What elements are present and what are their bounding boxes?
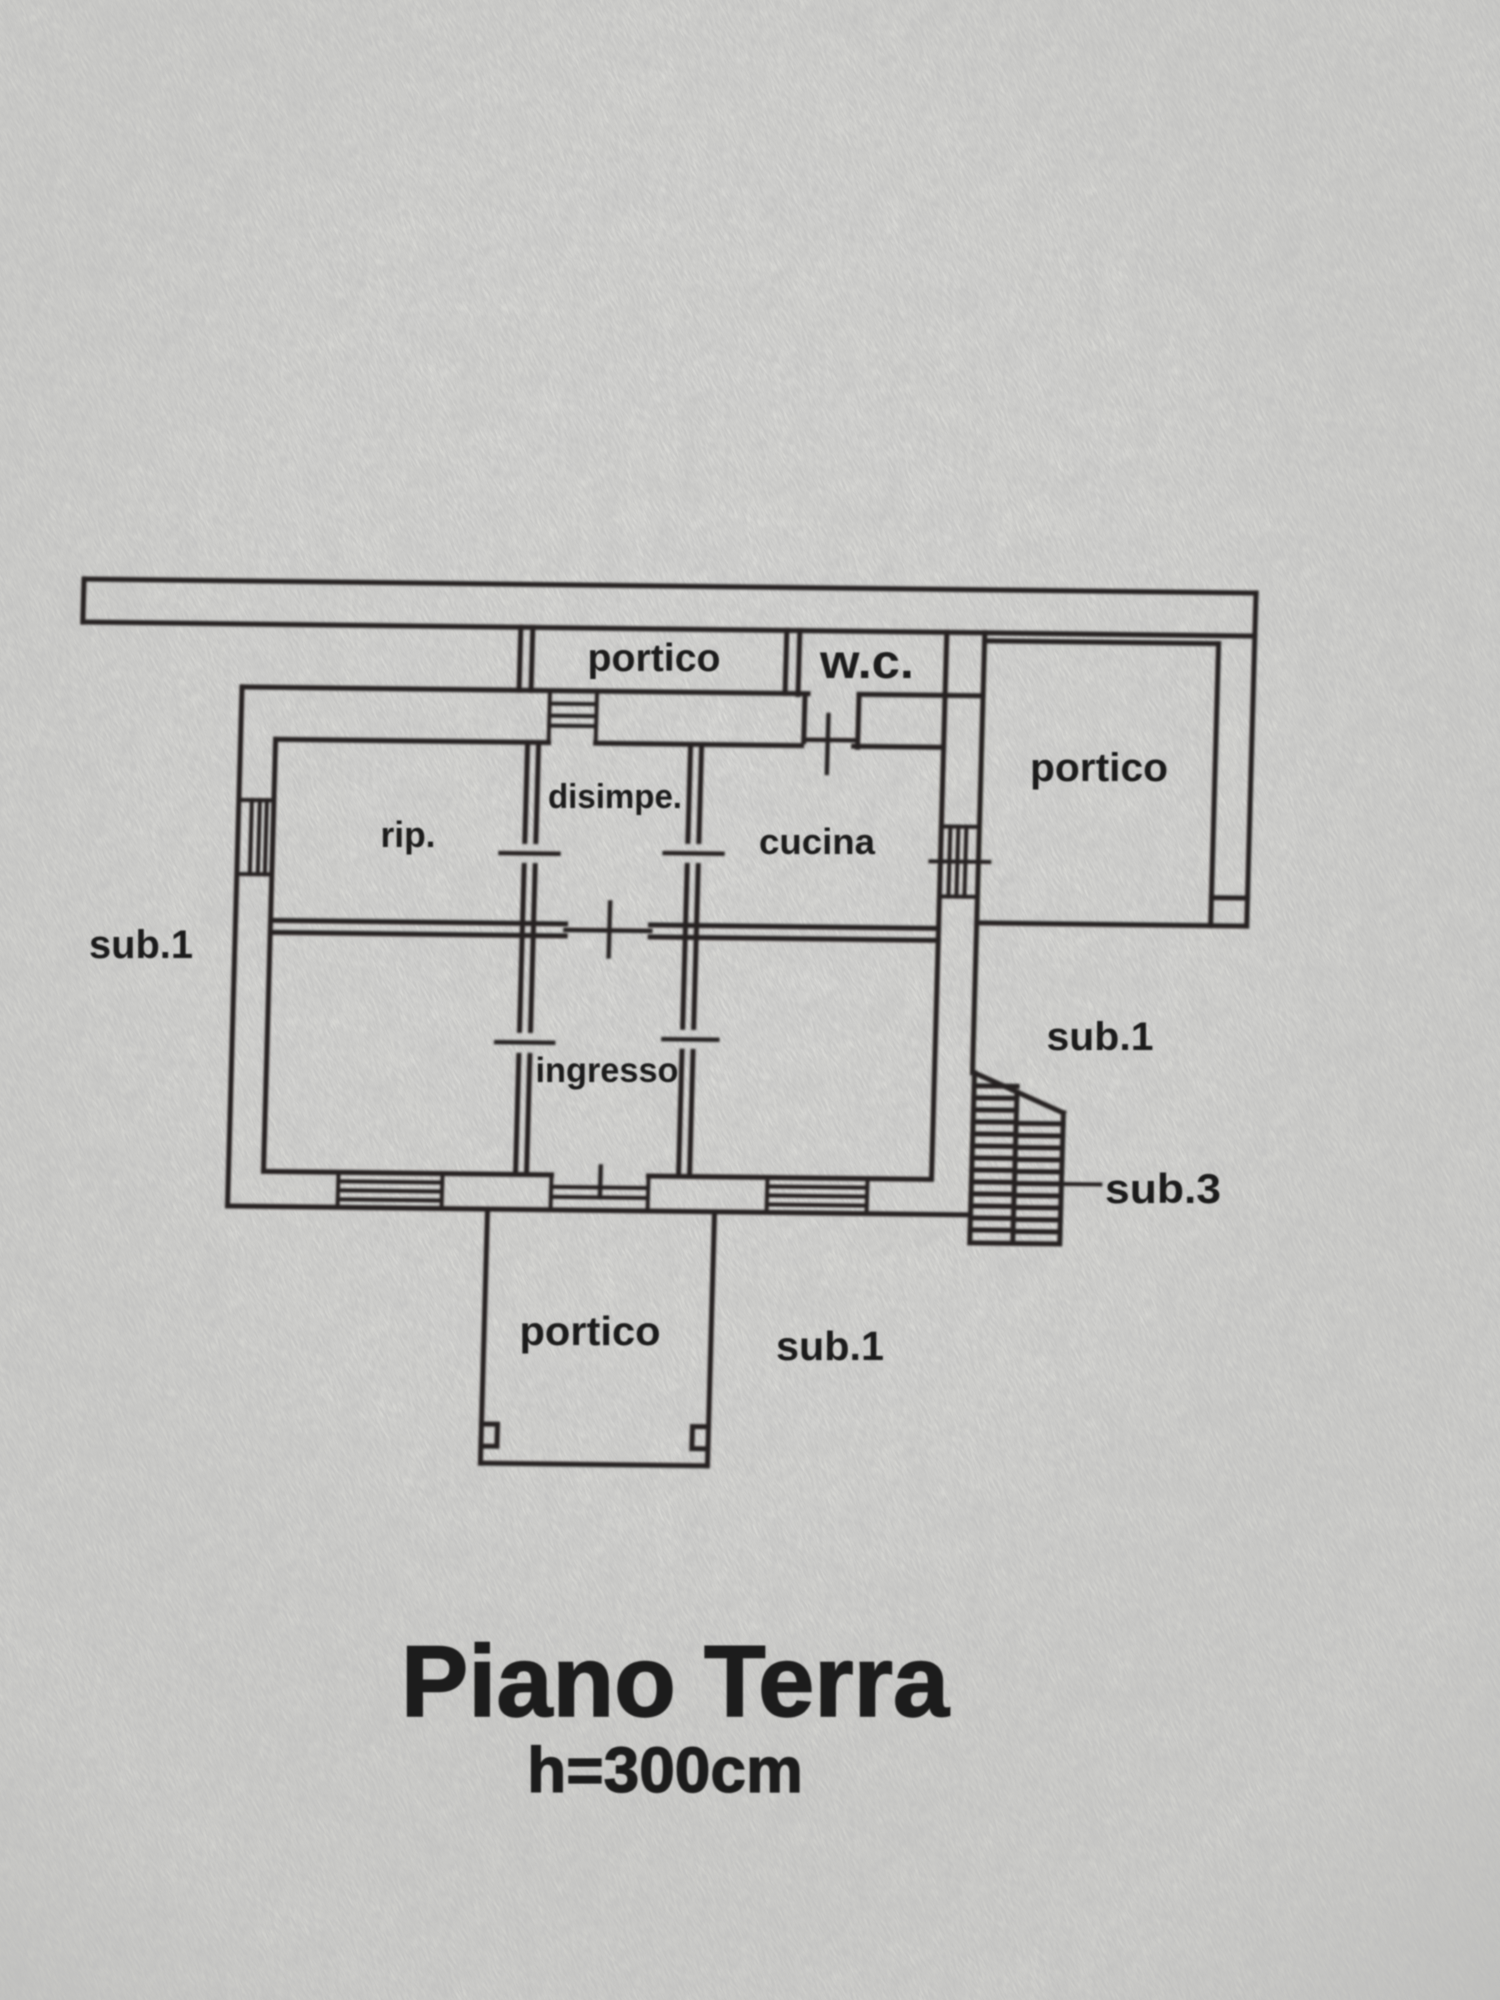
- svg-text:disimpe.: disimpe.: [548, 778, 682, 816]
- svg-text:sub.1: sub.1: [89, 923, 193, 967]
- svg-text:rip.: rip.: [381, 814, 436, 855]
- svg-text:sub.3: sub.3: [1105, 1165, 1221, 1212]
- svg-text:sub.1: sub.1: [776, 1323, 884, 1369]
- svg-text:Piano Terra: Piano Terra: [401, 1626, 950, 1738]
- svg-text:w.c.: w.c.: [819, 636, 914, 689]
- svg-text:portico: portico: [1030, 746, 1168, 790]
- svg-text:portico: portico: [588, 637, 721, 680]
- svg-text:portico: portico: [520, 1308, 661, 1354]
- svg-text:ingresso: ingresso: [536, 1051, 679, 1090]
- svg-text:sub.1: sub.1: [1047, 1015, 1154, 1059]
- svg-text:h=300cm: h=300cm: [527, 1734, 803, 1806]
- svg-text:cucina: cucina: [759, 821, 876, 862]
